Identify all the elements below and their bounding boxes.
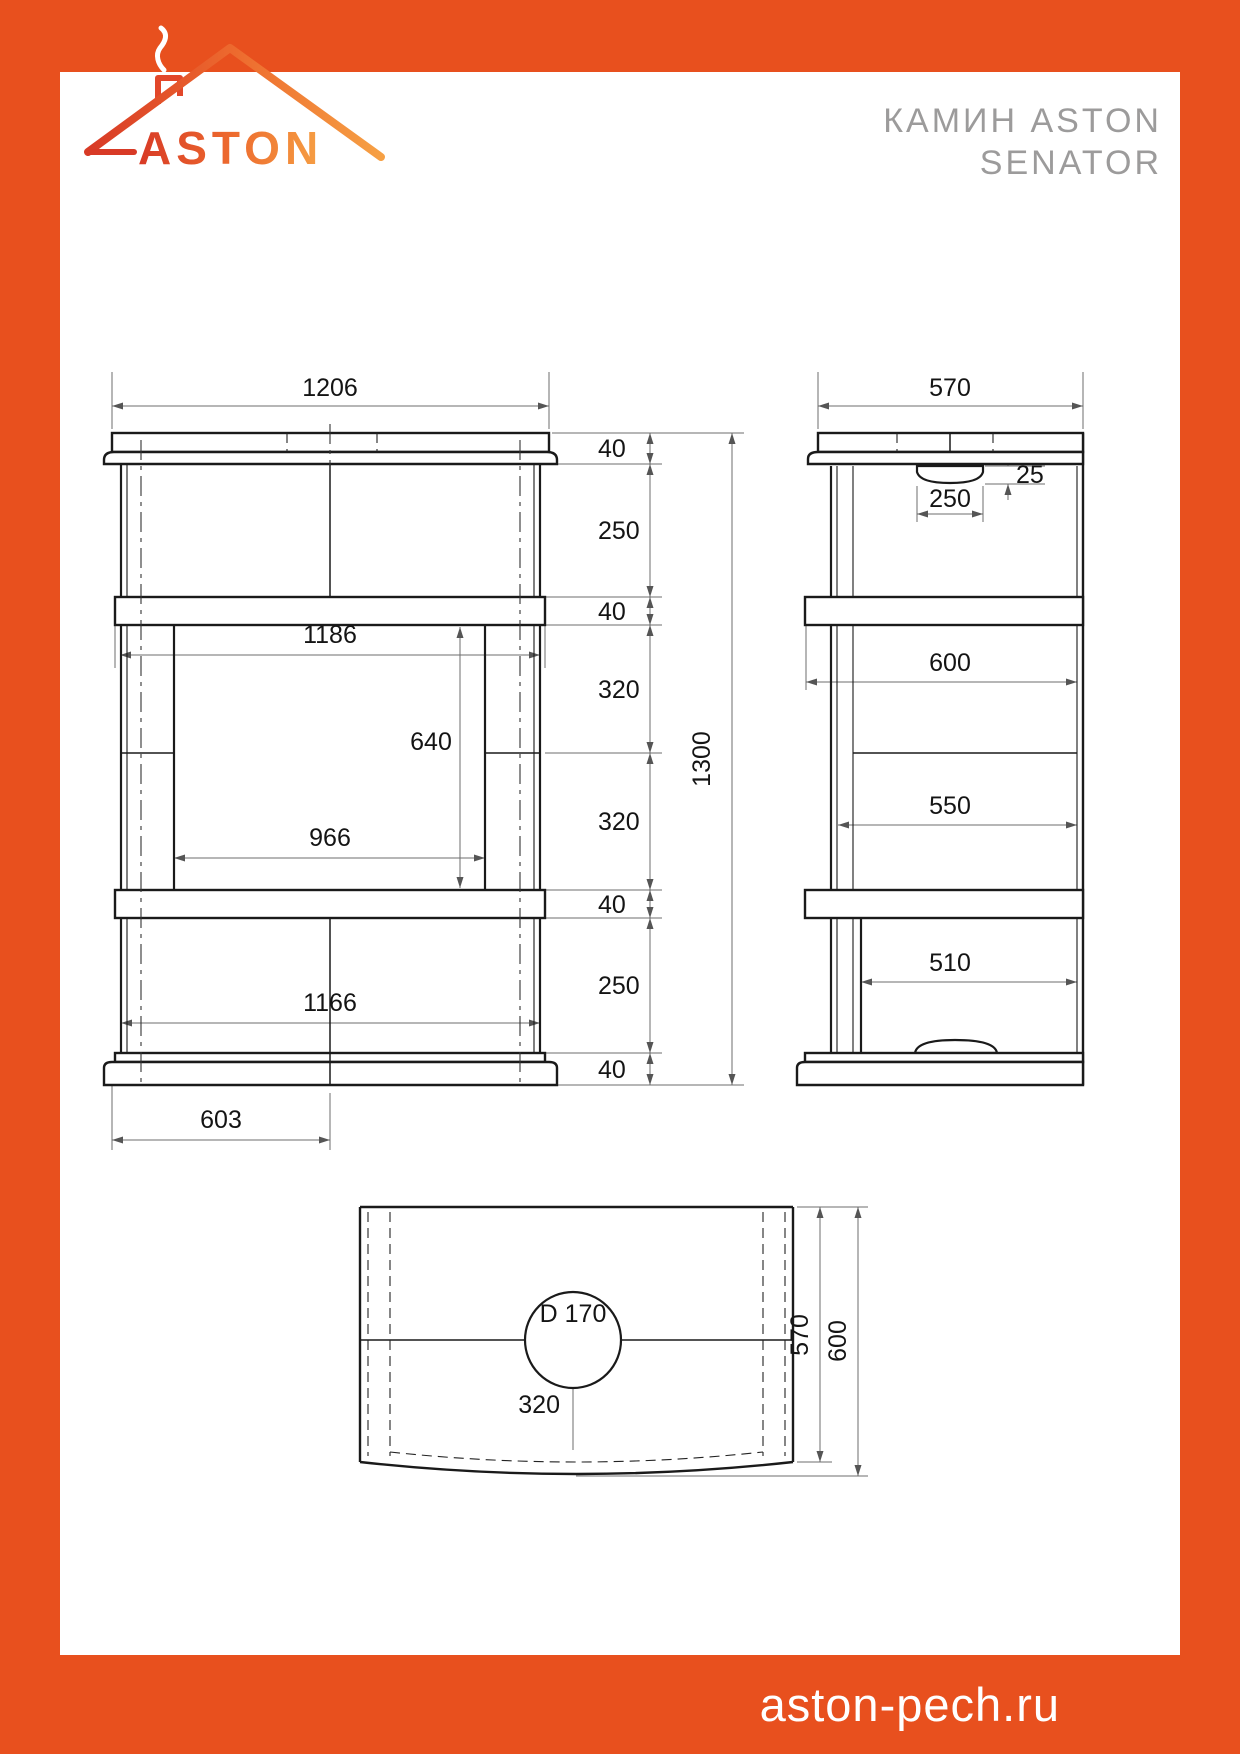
dim-plan-depth: 570 [786, 1314, 814, 1356]
dim-overall-height: 1300 [688, 731, 716, 787]
dim-lower-depth: 510 [929, 949, 971, 977]
dim-front-body-width: 1166 [303, 989, 357, 1017]
dim-chain-course-bottom: 320 [598, 808, 640, 836]
dim-front-shelf-width: 1186 [303, 621, 357, 649]
dim-flue-offset: 320 [518, 1391, 560, 1419]
dim-chain-course-top: 320 [598, 676, 640, 704]
dim-chain-upper-body: 250 [598, 517, 640, 545]
dim-damper-height: 25 [1016, 461, 1044, 489]
dim-front-overall-width: 1206 [302, 374, 358, 402]
dim-side-top-depth: 570 [929, 374, 971, 402]
dim-flue-diameter: D 170 [540, 1300, 607, 1328]
dim-chain-lower-shelf: 40 [598, 891, 626, 919]
dim-chain-upper-shelf: 40 [598, 598, 626, 626]
dim-chain-lower-body: 250 [598, 972, 640, 1000]
side-view [797, 433, 1083, 1085]
footer-website: aston-pech.ru [760, 1677, 1060, 1732]
dim-body-depth: 550 [929, 792, 971, 820]
page: ASTON КАМИН ASTON SENATOR [0, 0, 1240, 1754]
front-view [104, 424, 557, 1085]
dim-firebox-height: 640 [410, 728, 452, 756]
dim-damper-width: 250 [929, 485, 971, 513]
dim-shelf-depth: 600 [929, 649, 971, 677]
top-view [360, 1207, 793, 1474]
dim-firebox-width: 966 [309, 824, 351, 852]
dim-plan-total-depth: 600 [824, 1320, 852, 1362]
dim-chain-plinth: 40 [598, 1056, 626, 1084]
technical-drawing: 1206 1186 640 966 1166 603 1300 40 250 4… [0, 0, 1240, 1754]
dim-chain-crown: 40 [598, 435, 626, 463]
footer-bar: aston-pech.ru [0, 1655, 1240, 1754]
dim-front-half-width: 603 [200, 1106, 242, 1134]
